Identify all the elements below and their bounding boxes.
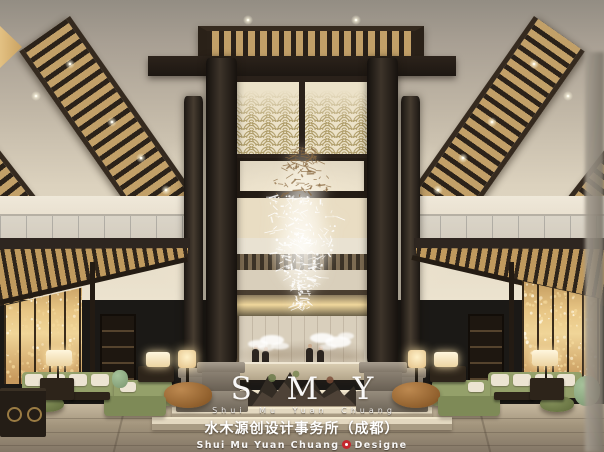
floor-lamp-left	[178, 350, 196, 368]
timber-column-back-left	[184, 96, 203, 368]
watermark: S M Y Shui Mu Yuan Chuang 水木源创设计事务所（成都） …	[0, 374, 604, 451]
pavilion-post-right	[509, 262, 514, 384]
timber-column-front-left	[206, 58, 237, 364]
watermark-logo: S M Y	[0, 374, 604, 404]
timber-column-back-right	[401, 96, 420, 368]
table-lamp-right-a	[532, 350, 558, 366]
watermark-en-prefix: Shui Mu Yuan Chuang	[196, 440, 339, 451]
table-lamp-right-b	[434, 352, 458, 367]
watermark-company-en: Shui Mu Yuan ChuangDesigne	[0, 440, 604, 451]
watermark-en-suffix: Designe	[354, 440, 407, 451]
pavilion-post-left	[90, 262, 95, 384]
watermark-subtitle: Shui Mu Yuan Chuang	[0, 406, 604, 415]
red-seal-badge	[342, 440, 351, 449]
floor-lamp-right	[408, 350, 426, 368]
cloud-art-installation-left	[246, 330, 292, 356]
timber-column-front-right	[367, 58, 398, 364]
lobby-rendering-scene: S M Y Shui Mu Yuan Chuang 水木源创设计事务所（成都） …	[0, 0, 604, 452]
cloud-art-installation-right	[306, 326, 358, 356]
table-lamp-left-a	[46, 350, 72, 366]
crystal-chandelier	[248, 140, 356, 315]
watermark-company-cn: 水木源创设计事务所（成都）	[0, 418, 604, 438]
table-lamp-left-b	[146, 352, 170, 367]
canopy-beam	[148, 56, 456, 76]
